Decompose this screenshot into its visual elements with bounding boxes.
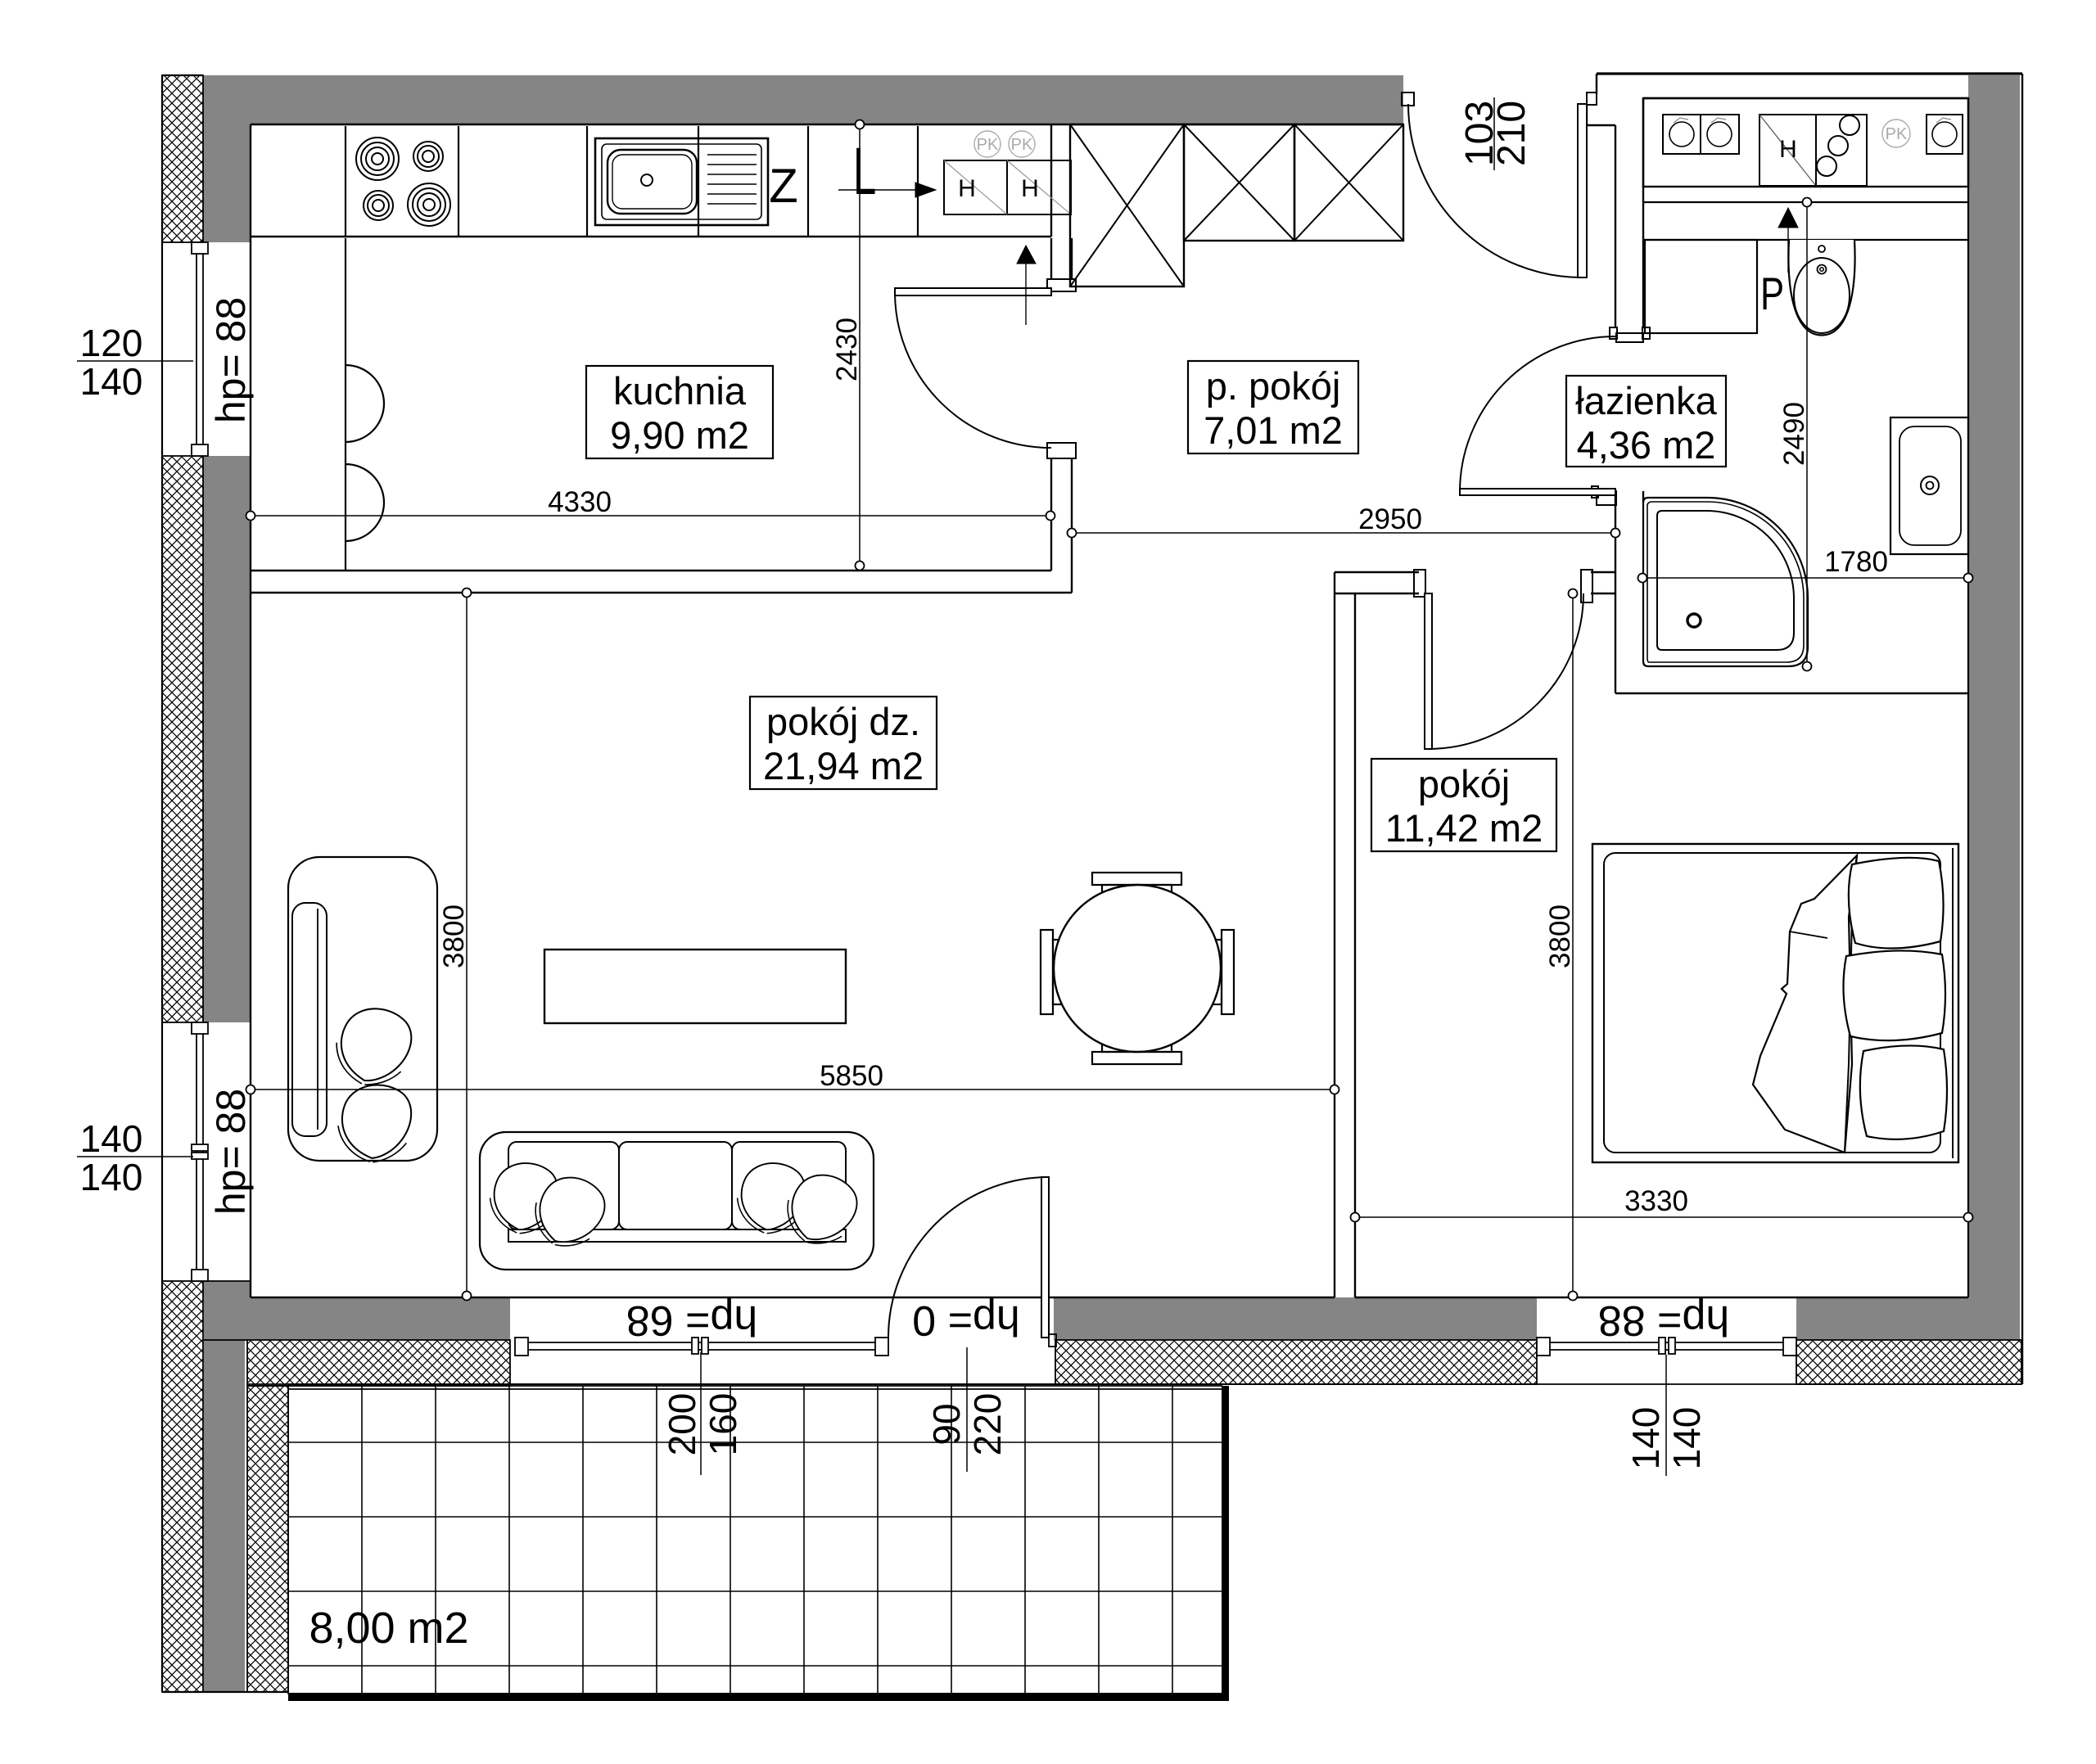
svg-text:140: 140 (80, 1156, 143, 1198)
svg-text:210: 210 (1490, 101, 1534, 166)
svg-text:21,94 m2: 21,94 m2 (763, 744, 924, 787)
svg-text:160: 160 (702, 1393, 744, 1456)
svg-text:4330: 4330 (548, 486, 612, 518)
svg-text:5850: 5850 (820, 1060, 883, 1092)
svg-text:P: P (1760, 268, 1784, 319)
svg-text:H: H (1779, 136, 1797, 163)
svg-text:PK: PK (1886, 125, 1908, 143)
svg-text:łazienka: łazienka (1575, 379, 1717, 422)
svg-text:90: 90 (925, 1403, 968, 1445)
svg-text:PK: PK (977, 136, 999, 154)
svg-text:4,36 m2: 4,36 m2 (1577, 423, 1716, 467)
svg-text:H: H (958, 175, 976, 202)
svg-text:8,00 m2: 8,00 m2 (309, 1604, 468, 1653)
svg-text:2430: 2430 (831, 318, 863, 381)
svg-text:140: 140 (80, 360, 143, 403)
svg-text:140: 140 (1624, 1407, 1667, 1470)
svg-text:hp= 88: hp= 88 (208, 297, 254, 423)
svg-text:120: 120 (80, 322, 143, 364)
svg-text:9,90 m2: 9,90 m2 (610, 413, 749, 457)
svg-text:3800: 3800 (438, 905, 470, 968)
svg-text:7,01 m2: 7,01 m2 (1204, 408, 1343, 452)
svg-text:3330: 3330 (1624, 1185, 1688, 1217)
svg-text:L: L (853, 134, 876, 209)
svg-text:kuchnia: kuchnia (613, 369, 747, 413)
svg-text:pokój: pokój (1418, 762, 1510, 805)
svg-text:hp= 88: hp= 88 (1598, 1297, 1730, 1344)
svg-text:11,42 m2: 11,42 m2 (1385, 806, 1543, 850)
svg-text:220: 220 (966, 1393, 1009, 1456)
svg-text:140: 140 (80, 1117, 143, 1160)
svg-text:hp= 88: hp= 88 (208, 1089, 254, 1215)
svg-text:1780: 1780 (1824, 546, 1888, 578)
svg-text:hp= 0: hp= 0 (912, 1297, 1020, 1344)
svg-text:140: 140 (1665, 1407, 1708, 1470)
svg-text:PK: PK (1011, 136, 1033, 154)
svg-text:Z: Z (769, 160, 797, 213)
svg-text:2950: 2950 (1358, 503, 1422, 535)
svg-text:3800: 3800 (1544, 905, 1576, 968)
svg-text:H: H (1021, 175, 1039, 202)
svg-text:2490: 2490 (1778, 402, 1810, 466)
svg-text:p. pokój: p. pokój (1206, 364, 1341, 408)
svg-text:200: 200 (661, 1393, 703, 1456)
svg-text:pokój dz.: pokój dz. (766, 700, 920, 743)
svg-text:hp= 68: hp= 68 (626, 1297, 758, 1344)
